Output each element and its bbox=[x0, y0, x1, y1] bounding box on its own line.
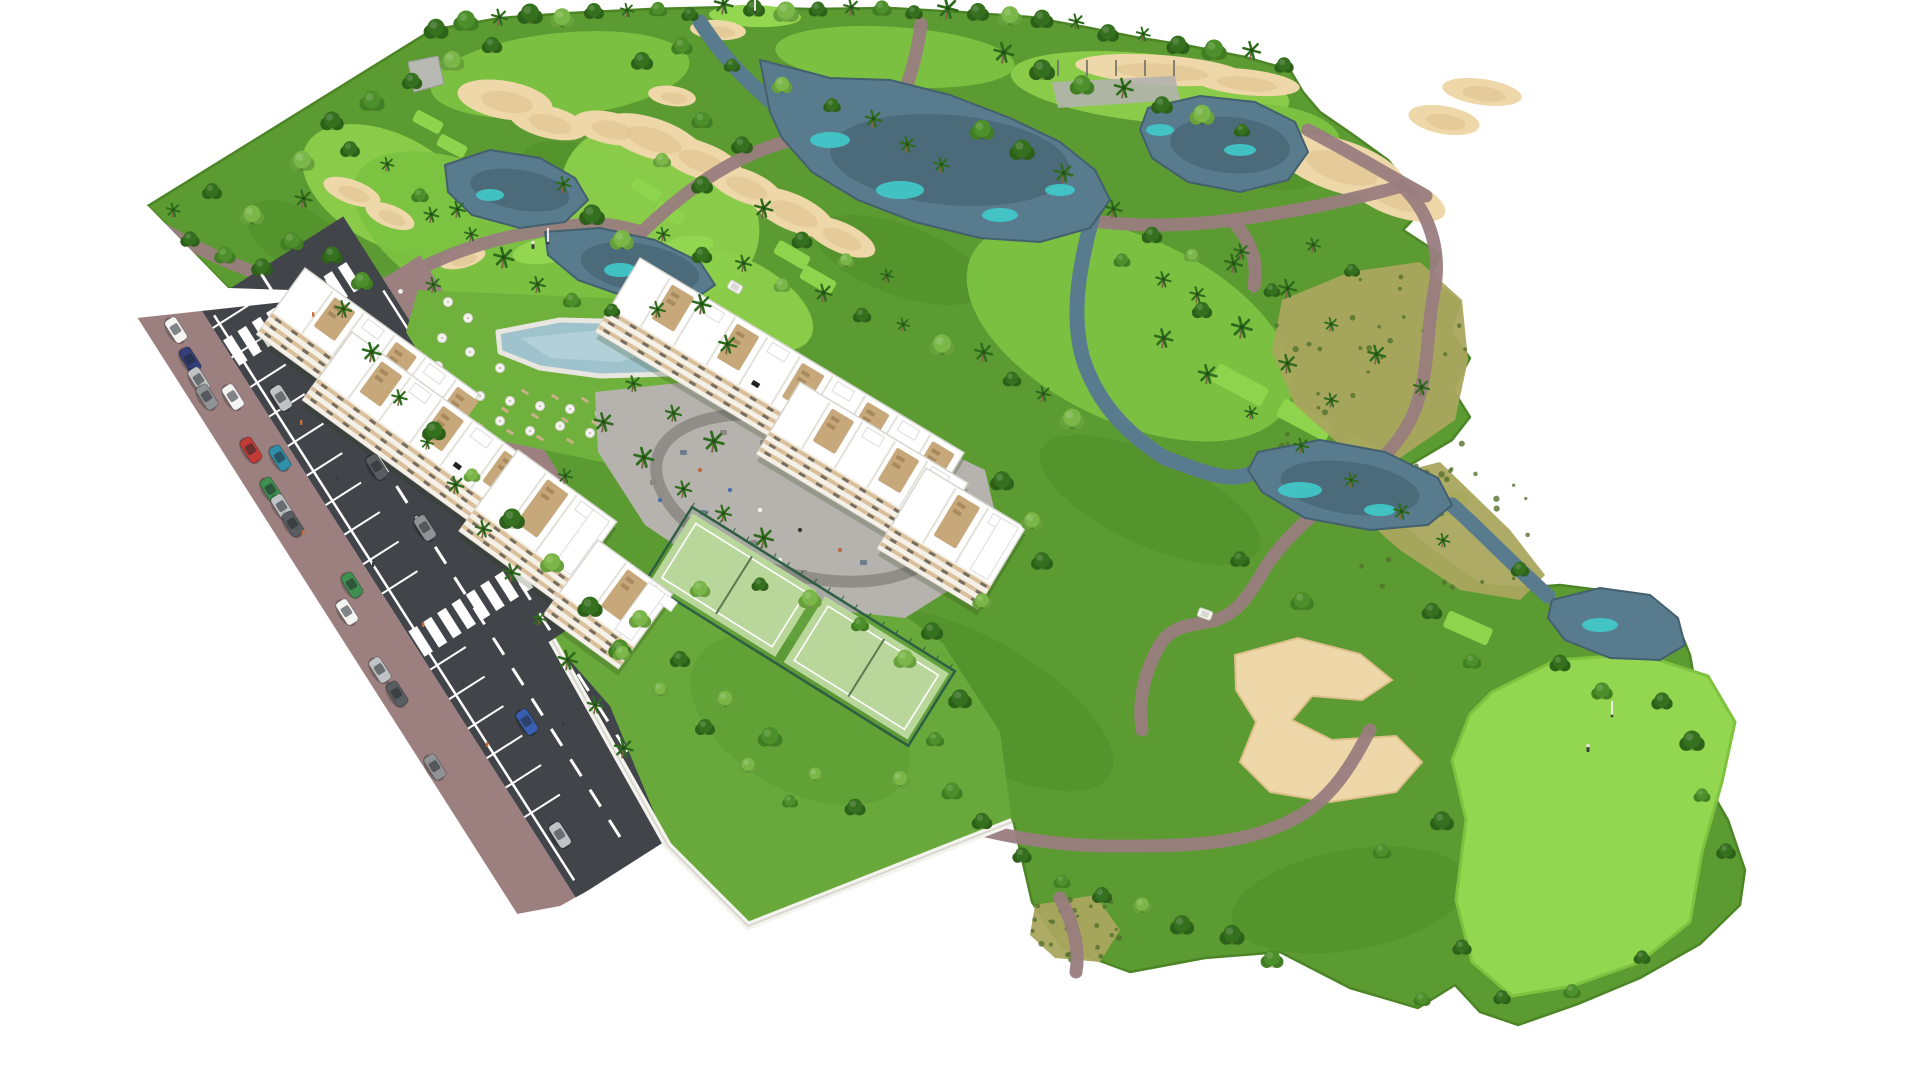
tree-highlight bbox=[1103, 26, 1110, 33]
palm-crown bbox=[1240, 325, 1244, 329]
tree bbox=[1166, 36, 1189, 54]
shrub bbox=[1035, 904, 1040, 909]
tree bbox=[872, 0, 891, 15]
palm-crown bbox=[482, 527, 485, 530]
person bbox=[658, 498, 662, 502]
palm-crown bbox=[510, 571, 513, 574]
shallow-water bbox=[1582, 618, 1618, 632]
palm-crown bbox=[722, 511, 725, 514]
shrub bbox=[1350, 393, 1355, 398]
tree-highlight bbox=[996, 474, 1003, 481]
tree-highlight bbox=[246, 208, 253, 215]
tree bbox=[1274, 57, 1293, 72]
tree-highlight bbox=[1235, 553, 1241, 559]
shrub bbox=[1512, 577, 1516, 581]
tree bbox=[905, 5, 923, 19]
palm-crown bbox=[1420, 386, 1423, 389]
tree-highlight bbox=[556, 11, 563, 18]
palm-crown bbox=[726, 342, 730, 346]
tree-highlight bbox=[608, 305, 613, 310]
tree-highlight bbox=[1036, 12, 1043, 19]
shrub bbox=[1038, 941, 1044, 947]
palm-crown bbox=[902, 323, 905, 326]
palm-crown bbox=[426, 441, 429, 444]
palm-crown bbox=[632, 382, 635, 385]
tree-highlight bbox=[828, 100, 833, 105]
tree-highlight bbox=[855, 619, 860, 624]
tree-highlight bbox=[1066, 411, 1074, 419]
palm-crown bbox=[456, 207, 459, 210]
shrub bbox=[1493, 496, 1499, 502]
shrub bbox=[1065, 952, 1070, 957]
tree-highlight bbox=[1147, 229, 1153, 235]
shrub bbox=[1448, 469, 1452, 473]
tree-highlight bbox=[220, 248, 226, 254]
shrub bbox=[1443, 352, 1447, 356]
palm-crown bbox=[712, 439, 716, 443]
tree-highlight bbox=[850, 801, 856, 807]
shallow-water bbox=[1146, 124, 1174, 136]
shrub bbox=[1048, 919, 1051, 922]
tree-highlight bbox=[1017, 849, 1023, 855]
tree-highlight bbox=[720, 693, 726, 699]
tree-highlight bbox=[1436, 814, 1443, 821]
tree bbox=[998, 6, 1022, 25]
palm-crown bbox=[342, 307, 345, 310]
tree-highlight bbox=[1208, 42, 1216, 50]
person bbox=[728, 488, 732, 492]
tree-highlight bbox=[430, 21, 437, 28]
tree-highlight bbox=[1268, 285, 1273, 290]
tree-highlight bbox=[804, 592, 811, 599]
tree-highlight bbox=[977, 815, 983, 821]
tree-highlight bbox=[185, 233, 191, 239]
tree-highlight bbox=[797, 234, 803, 240]
palm-crown bbox=[432, 283, 435, 286]
tree-highlight bbox=[1721, 845, 1727, 851]
palm-crown bbox=[1112, 207, 1115, 210]
tree-highlight bbox=[842, 255, 847, 260]
tree-highlight bbox=[524, 6, 532, 14]
palm-crown bbox=[1075, 20, 1078, 23]
tree-highlight bbox=[460, 13, 468, 21]
shrub bbox=[1286, 442, 1290, 446]
shrub bbox=[1317, 406, 1321, 410]
tree-highlight bbox=[656, 684, 661, 689]
palm-crown bbox=[622, 746, 626, 750]
tree-highlight bbox=[589, 5, 595, 11]
shrub bbox=[1293, 346, 1299, 352]
person bbox=[838, 548, 842, 552]
palm-crown bbox=[886, 274, 889, 277]
tree-highlight bbox=[1467, 656, 1473, 662]
pedestrian bbox=[336, 476, 338, 481]
shrub bbox=[1377, 325, 1381, 329]
tree-highlight bbox=[1377, 846, 1383, 852]
shrub bbox=[1089, 904, 1093, 908]
pedestrian bbox=[562, 722, 564, 727]
tree-highlight bbox=[1348, 265, 1353, 270]
palm-crown bbox=[1250, 411, 1253, 414]
tree-highlight bbox=[972, 5, 979, 12]
tree-highlight bbox=[1597, 685, 1603, 691]
shrub bbox=[1380, 583, 1385, 588]
tree-highlight bbox=[1296, 594, 1303, 601]
palm-crown bbox=[1042, 392, 1045, 395]
tree-highlight bbox=[1638, 952, 1643, 957]
tree-highlight bbox=[1266, 952, 1273, 959]
tree-highlight bbox=[1007, 374, 1013, 380]
tree-highlight bbox=[207, 185, 213, 191]
parasol-top bbox=[529, 430, 531, 432]
shrub bbox=[1450, 584, 1455, 589]
tree-highlight bbox=[326, 114, 333, 121]
tree-highlight bbox=[895, 773, 901, 779]
shrub bbox=[1438, 471, 1444, 477]
tree-highlight bbox=[778, 280, 783, 285]
tree-highlight bbox=[257, 260, 264, 267]
palm-crown bbox=[682, 487, 685, 490]
shrub bbox=[1366, 345, 1372, 351]
play-equipment bbox=[680, 450, 687, 455]
palm-crown bbox=[430, 213, 433, 216]
palm-crown bbox=[302, 197, 305, 200]
tree-highlight bbox=[675, 653, 681, 659]
tree-highlight bbox=[296, 153, 304, 161]
shrub bbox=[1512, 484, 1515, 487]
shrub bbox=[1494, 506, 1500, 512]
palm-crown bbox=[1330, 323, 1333, 326]
tree-highlight bbox=[567, 295, 573, 301]
palm-crown bbox=[1142, 33, 1145, 36]
palm-crown bbox=[1062, 171, 1066, 175]
tree-highlight bbox=[1188, 250, 1193, 255]
shrub bbox=[1386, 557, 1391, 562]
tree-highlight bbox=[936, 337, 944, 345]
tree-highlight bbox=[1016, 142, 1024, 150]
tree-highlight bbox=[764, 729, 771, 736]
tree-highlight bbox=[416, 190, 421, 195]
shrub bbox=[1442, 580, 1447, 585]
shrub bbox=[1480, 580, 1484, 584]
shrub bbox=[1322, 409, 1328, 415]
tree bbox=[424, 19, 449, 39]
parasol-top bbox=[509, 400, 511, 402]
tree-highlight bbox=[930, 734, 935, 739]
palm-tree bbox=[1243, 42, 1260, 60]
shrub bbox=[1317, 346, 1322, 351]
palm-crown bbox=[982, 350, 986, 354]
palm-crown bbox=[1162, 278, 1165, 281]
shrub bbox=[1359, 278, 1362, 281]
tree-highlight bbox=[1568, 986, 1573, 991]
play-equipment bbox=[860, 560, 867, 565]
tree-highlight bbox=[546, 556, 553, 563]
tree-highlight bbox=[686, 9, 691, 14]
tree-highlight bbox=[345, 143, 351, 149]
palm-crown bbox=[1330, 399, 1333, 402]
golfer-head bbox=[1586, 744, 1590, 748]
tree-highlight bbox=[697, 249, 703, 255]
person bbox=[758, 508, 762, 512]
tree-highlight bbox=[697, 114, 703, 120]
golfer-head bbox=[531, 241, 535, 245]
palm-crown bbox=[562, 183, 565, 186]
palm-crown bbox=[662, 233, 665, 236]
tree-highlight bbox=[1686, 733, 1694, 741]
play-equipment bbox=[650, 480, 657, 485]
tree-highlight bbox=[1176, 918, 1183, 925]
tree-highlight bbox=[700, 721, 706, 727]
palm-crown bbox=[1206, 372, 1210, 376]
pedestrian bbox=[312, 312, 314, 317]
palm-crown bbox=[906, 143, 909, 146]
parasol-top bbox=[467, 317, 469, 319]
tree-highlight bbox=[1118, 255, 1123, 260]
tree-highlight bbox=[617, 648, 622, 653]
palm-crown bbox=[566, 658, 570, 662]
tree bbox=[1030, 10, 1053, 28]
tree-highlight bbox=[777, 79, 783, 85]
tree-highlight bbox=[1418, 994, 1423, 999]
tree bbox=[550, 8, 574, 27]
tree-highlight bbox=[286, 234, 293, 241]
palm-crown bbox=[1400, 510, 1403, 513]
palm-crown bbox=[762, 536, 766, 540]
palm-crown bbox=[742, 261, 745, 264]
tree-highlight bbox=[1197, 304, 1203, 310]
tree-highlight bbox=[737, 138, 744, 145]
tree-highlight bbox=[1515, 564, 1521, 570]
tree-highlight bbox=[1137, 899, 1143, 905]
shallow-water bbox=[1045, 184, 1075, 196]
tree-highlight bbox=[1657, 695, 1663, 701]
palm-crown bbox=[1312, 243, 1315, 246]
palm-crown bbox=[762, 206, 766, 210]
palm-crown bbox=[822, 291, 825, 294]
tree-highlight bbox=[1097, 889, 1103, 895]
parasol-top bbox=[499, 420, 501, 422]
palm-crown bbox=[564, 474, 567, 477]
tree-highlight bbox=[1196, 107, 1204, 115]
parasol-top bbox=[539, 405, 541, 407]
tree-highlight bbox=[1555, 657, 1561, 663]
shallow-water bbox=[876, 181, 924, 199]
shrub bbox=[1076, 914, 1079, 917]
pedestrian bbox=[486, 742, 488, 747]
pedestrian bbox=[462, 682, 464, 687]
shrub bbox=[1473, 472, 1477, 476]
palm-crown bbox=[700, 302, 704, 306]
tree-highlight bbox=[636, 54, 643, 61]
tree-highlight bbox=[877, 2, 883, 8]
shrub bbox=[1117, 937, 1121, 941]
tree bbox=[649, 2, 667, 16]
tree-highlight bbox=[786, 796, 791, 801]
palm-crown bbox=[940, 163, 943, 166]
tree-highlight bbox=[977, 595, 983, 601]
palm-crown bbox=[536, 283, 539, 286]
tree-highlight bbox=[1037, 554, 1044, 561]
palm-crown bbox=[1002, 51, 1006, 55]
tree-highlight bbox=[1027, 514, 1034, 521]
tree-highlight bbox=[366, 93, 374, 101]
tree bbox=[1201, 39, 1227, 59]
hole bbox=[754, 11, 757, 14]
golfer bbox=[1587, 747, 1590, 752]
shrub bbox=[1031, 929, 1035, 933]
tree-highlight bbox=[813, 3, 819, 9]
shrub bbox=[1359, 564, 1364, 569]
tree-highlight bbox=[1238, 125, 1243, 130]
palm-crown bbox=[672, 411, 675, 414]
palm-crown bbox=[872, 117, 875, 120]
palm-crown bbox=[1286, 286, 1290, 290]
golfer bbox=[532, 244, 535, 249]
shallow-water bbox=[982, 208, 1018, 222]
tree-highlight bbox=[1457, 941, 1463, 947]
pedestrian bbox=[300, 420, 302, 425]
palm-crown bbox=[386, 163, 389, 166]
tree-highlight bbox=[584, 599, 592, 607]
tree-highlight bbox=[327, 249, 333, 255]
pedestrian bbox=[302, 530, 304, 535]
tree-highlight bbox=[1698, 790, 1703, 795]
tree bbox=[1097, 24, 1119, 41]
palm-crown bbox=[594, 703, 597, 706]
palm-crown bbox=[1122, 86, 1126, 90]
palm-crown bbox=[656, 308, 659, 311]
pedestrian bbox=[372, 562, 374, 567]
palm-crown bbox=[538, 617, 541, 620]
shallow-water bbox=[1224, 144, 1256, 156]
tree bbox=[967, 3, 989, 21]
tree-highlight bbox=[780, 4, 788, 12]
tree-highlight bbox=[954, 692, 961, 699]
tree-highlight bbox=[634, 612, 641, 619]
hole bbox=[1611, 715, 1614, 718]
tree bbox=[584, 3, 604, 19]
palm-crown bbox=[398, 396, 401, 399]
shrub bbox=[1094, 923, 1099, 928]
tree-highlight bbox=[926, 624, 933, 631]
parasol-top bbox=[441, 337, 443, 339]
tree-highlight bbox=[743, 759, 749, 765]
palm-crown bbox=[850, 6, 853, 9]
palm-crown bbox=[642, 455, 646, 459]
tree-highlight bbox=[1172, 38, 1179, 45]
tree-highlight bbox=[657, 155, 662, 160]
tree bbox=[517, 4, 542, 24]
parasol-top bbox=[559, 425, 561, 427]
shrub bbox=[1115, 928, 1118, 931]
palm-crown bbox=[502, 255, 506, 259]
shrub bbox=[1307, 342, 1312, 347]
shrub bbox=[1316, 392, 1320, 396]
palm-crown bbox=[1162, 336, 1166, 340]
shrub bbox=[1098, 954, 1103, 959]
parasol-top bbox=[479, 395, 481, 397]
parasol-top bbox=[447, 301, 449, 303]
shallow-water bbox=[476, 189, 504, 201]
shallow-water bbox=[1278, 482, 1322, 498]
shrub bbox=[1457, 323, 1462, 328]
shrub bbox=[1049, 942, 1053, 946]
tree-highlight bbox=[1279, 59, 1285, 65]
shrub bbox=[1350, 315, 1356, 321]
tree-highlight bbox=[947, 785, 953, 791]
tree-highlight bbox=[910, 7, 915, 12]
shallow-water bbox=[810, 132, 850, 148]
person bbox=[698, 468, 702, 472]
tree-highlight bbox=[811, 769, 816, 774]
shrub bbox=[1366, 370, 1370, 374]
shrub bbox=[1525, 533, 1530, 538]
tree-highlight bbox=[728, 60, 733, 65]
tree-highlight bbox=[446, 53, 453, 60]
tree-highlight bbox=[1058, 876, 1063, 881]
tree-highlight bbox=[1498, 992, 1503, 997]
tree-highlight bbox=[1226, 927, 1233, 934]
palm-crown bbox=[626, 9, 629, 12]
tree-highlight bbox=[1427, 605, 1433, 611]
parasol-top bbox=[499, 367, 501, 369]
tree-highlight bbox=[1004, 9, 1011, 16]
palm-crown bbox=[172, 209, 175, 212]
palm-crown bbox=[722, 2, 726, 6]
pedestrian bbox=[260, 345, 262, 350]
shrub bbox=[1285, 432, 1290, 437]
parasol-top bbox=[589, 432, 591, 434]
tree-highlight bbox=[695, 583, 701, 589]
palm-crown bbox=[1350, 479, 1353, 482]
palm-crown bbox=[470, 233, 473, 236]
palm-crown bbox=[454, 483, 457, 486]
shrub bbox=[1387, 338, 1393, 344]
tree-highlight bbox=[506, 511, 514, 519]
palm-crown bbox=[602, 420, 606, 424]
shrub bbox=[1358, 346, 1362, 350]
palm-crown bbox=[498, 15, 501, 18]
shrub bbox=[1398, 287, 1402, 291]
shrub bbox=[1402, 315, 1406, 319]
tree-highlight bbox=[1036, 62, 1044, 70]
shallow-water bbox=[1364, 504, 1396, 516]
site-aerial-rendering bbox=[0, 0, 1920, 1079]
palm-crown bbox=[1300, 444, 1303, 447]
palm-crown bbox=[1232, 261, 1236, 265]
shrub bbox=[1524, 497, 1527, 500]
tree-highlight bbox=[1076, 77, 1083, 84]
shrub bbox=[1275, 323, 1279, 327]
palm-crown bbox=[1240, 250, 1243, 253]
palm-crown bbox=[946, 6, 950, 10]
shrub bbox=[1463, 347, 1467, 351]
shrub bbox=[1444, 476, 1450, 482]
tree-highlight bbox=[428, 424, 435, 431]
person bbox=[798, 528, 802, 532]
tree-highlight bbox=[677, 40, 683, 46]
tree-highlight bbox=[1157, 98, 1164, 105]
palm-crown bbox=[1375, 352, 1379, 356]
pedestrian bbox=[422, 622, 424, 627]
tree-highlight bbox=[653, 4, 658, 9]
tree bbox=[773, 1, 799, 22]
shrub bbox=[1398, 275, 1403, 280]
aerial-rendering-canvas bbox=[0, 0, 1920, 1079]
tree-highlight bbox=[616, 233, 623, 240]
palm-crown bbox=[1196, 293, 1199, 296]
